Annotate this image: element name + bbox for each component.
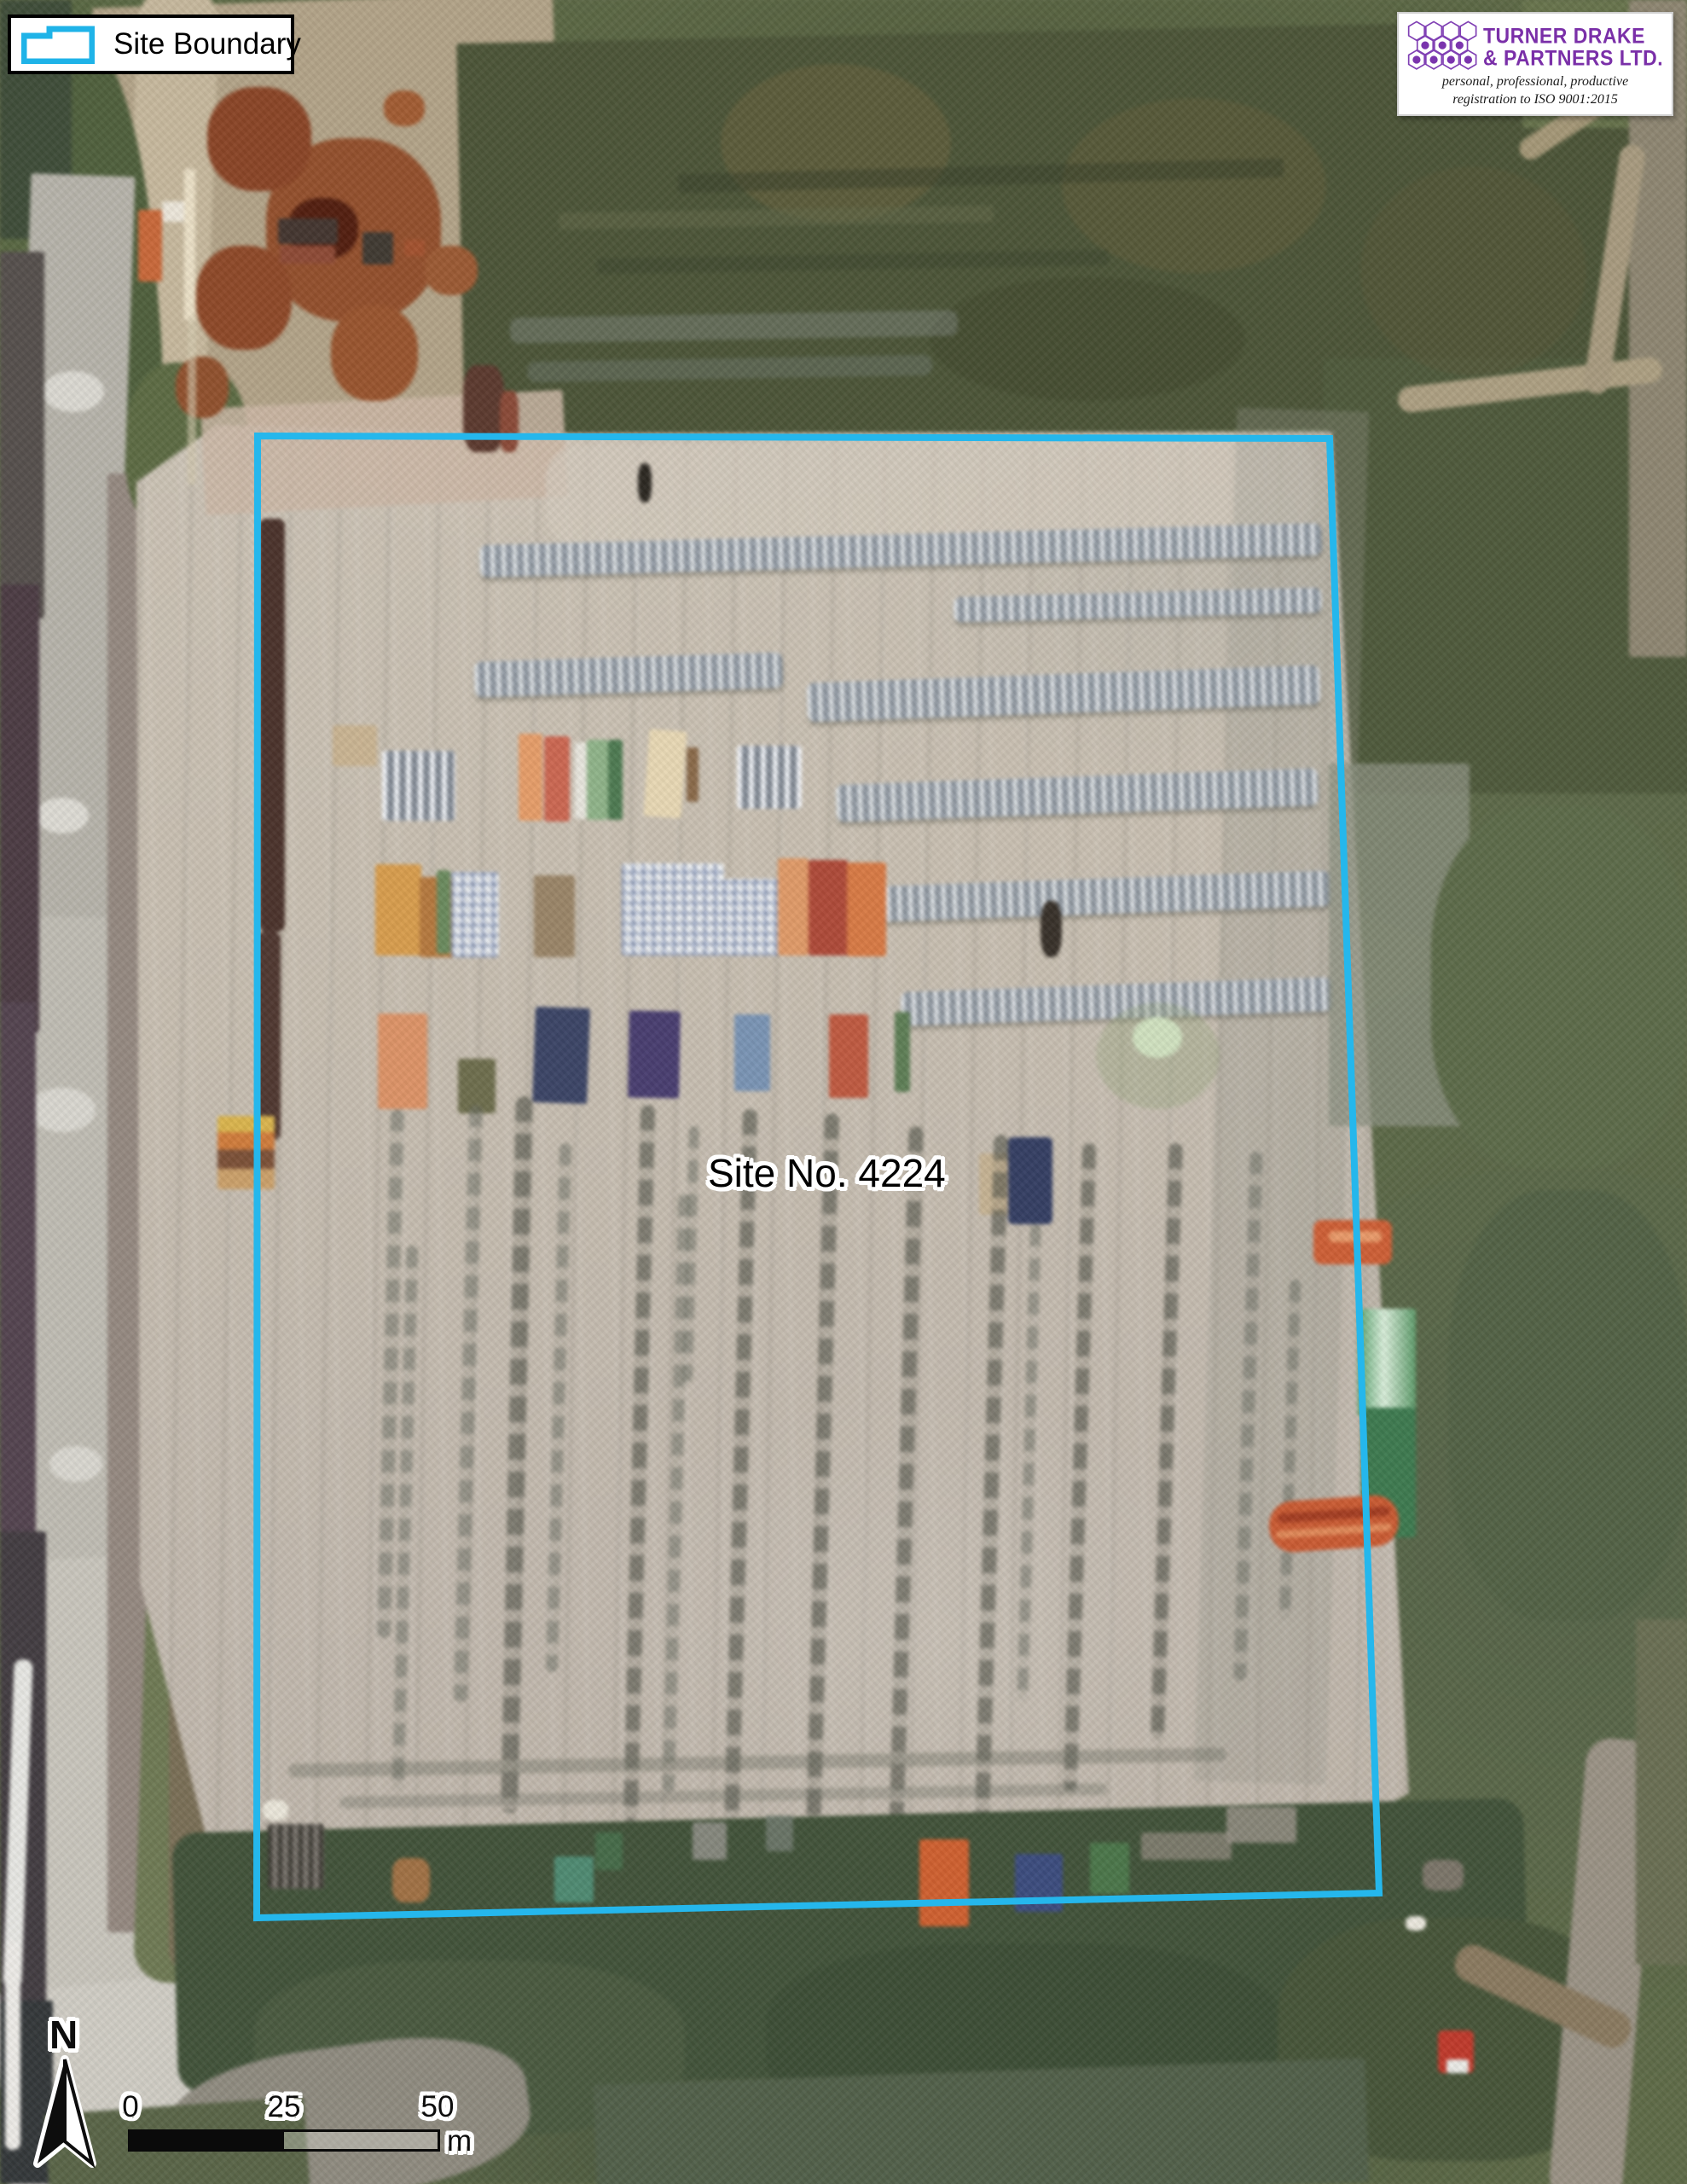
logo-name-line2: & PARTNERS LTD.: [1483, 48, 1663, 70]
scale-tick-0: 0: [118, 2090, 143, 2124]
north-label: N: [49, 2012, 78, 2058]
logo-name: TURNER DRAKE & PARTNERS LTD.: [1483, 26, 1663, 70]
company-logo: TURNER DRAKE & PARTNERS LTD. personal, p…: [1397, 12, 1673, 116]
map-canvas: Site No. 4224 Site Boundary: [0, 0, 1687, 2184]
scale-bar-filled-half: [130, 2132, 284, 2149]
logo-header: TURNER DRAKE & PARTNERS LTD.: [1399, 14, 1672, 73]
logo-tagline: personal, professional, productive: [1399, 73, 1672, 90]
logo-name-line1: TURNER DRAKE: [1483, 26, 1663, 48]
scale-tick-25: 25: [263, 2090, 305, 2124]
north-arrow-icon: [29, 2054, 101, 2170]
legend-label: Site Boundary: [113, 27, 301, 61]
site-label: Site No. 4224: [708, 1150, 946, 1196]
hexagon-logo-icon: [1407, 20, 1479, 73]
site-boundary-polygon: [0, 0, 1687, 2184]
site-boundary-swatch-icon: [21, 25, 95, 64]
scale-bar-track: [128, 2129, 440, 2152]
scale-unit: m: [447, 2124, 472, 2158]
scale-tick-50: 50: [416, 2090, 459, 2124]
legend: Site Boundary: [8, 15, 294, 74]
map-overlay: Site No. 4224 Site Boundary: [0, 0, 1687, 2184]
logo-registration: registration to ISO 9001:2015: [1399, 91, 1672, 108]
